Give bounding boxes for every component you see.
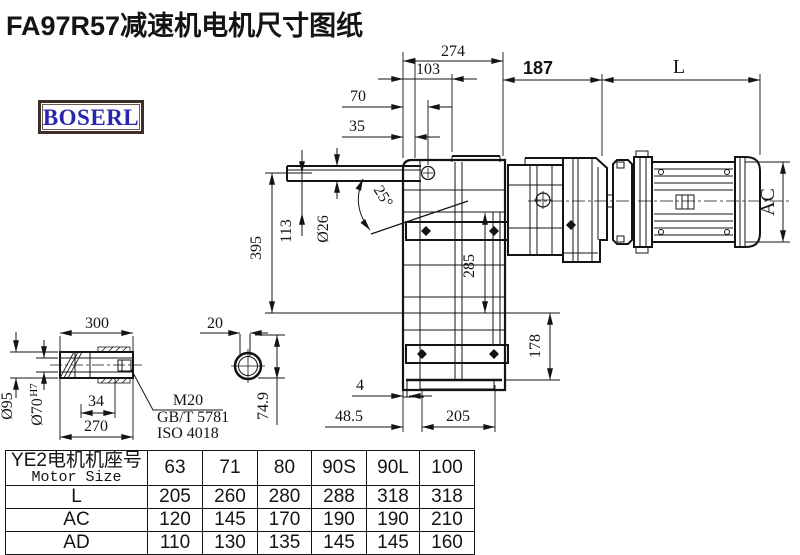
extension-lines <box>10 52 790 440</box>
cell-L-100: 318 <box>420 486 475 509</box>
dim-187: 187 <box>523 58 553 78</box>
cell-L-80: 280 <box>258 486 312 509</box>
row-label-AD: AD <box>6 532 148 555</box>
table-header-motor-size: YE2电机机座号 Motor Size <box>6 451 148 486</box>
header-en: Motor Size <box>6 471 147 485</box>
table-header-row: YE2电机机座号 Motor Size 63 71 80 90S 90L 100 <box>6 451 475 486</box>
cell-AD-100: 160 <box>420 532 475 555</box>
dim-113: 113 <box>278 219 295 242</box>
label-iso4018: ISO 4018 <box>157 425 219 442</box>
cell-L-90s: 288 <box>312 486 367 509</box>
dim-20: 20 <box>207 315 223 332</box>
cell-L-63: 205 <box>148 486 203 509</box>
cell-AC-71: 145 <box>203 509 258 532</box>
dim-274: 274 <box>441 43 465 60</box>
hollow-shaft-detail <box>50 347 142 383</box>
dim-AC: AC <box>757 188 779 216</box>
dim-25deg: 25° <box>370 183 396 211</box>
cell-AC-80: 170 <box>258 509 312 532</box>
header-cn: YE2电机机座号 <box>6 451 147 471</box>
col-80: 80 <box>258 451 312 486</box>
cell-AC-90s: 190 <box>312 509 367 532</box>
motor-size-table: YE2电机机座号 Motor Size 63 71 80 90S 90L 100… <box>5 450 475 555</box>
table-row-L: L 205 260 280 288 318 318 <box>6 486 475 509</box>
col-100: 100 <box>420 451 475 486</box>
cell-AC-63: 120 <box>148 509 203 532</box>
dim-70: 70 <box>350 88 366 105</box>
col-90l: 90L <box>367 451 420 486</box>
cell-AD-63: 110 <box>148 532 203 555</box>
dim-178: 178 <box>527 334 544 358</box>
dim-70h7: Ø70 <box>29 398 46 426</box>
dim-103: 103 <box>416 61 440 78</box>
cell-L-90l: 318 <box>367 486 420 509</box>
dim-95: Ø95 <box>0 392 16 420</box>
dimension-lines <box>16 61 783 437</box>
r57-gear-unit <box>508 158 607 262</box>
dim-4: 4 <box>356 377 364 394</box>
dim-26: Ø26 <box>315 215 332 243</box>
keyed-bore-section <box>231 334 265 383</box>
cell-AD-80: 135 <box>258 532 312 555</box>
cell-L-71: 260 <box>203 486 258 509</box>
row-label-AC: AC <box>6 509 148 532</box>
col-90s: 90S <box>312 451 367 486</box>
motor <box>528 151 792 253</box>
cell-AC-100: 210 <box>420 509 475 532</box>
dim-74-9: 74.9 <box>255 392 272 420</box>
col-63: 63 <box>148 451 203 486</box>
dim-34: 34 <box>88 393 104 410</box>
dim-205: 205 <box>446 408 470 425</box>
cell-AC-90l: 190 <box>367 509 420 532</box>
cell-AD-90l: 145 <box>367 532 420 555</box>
col-71: 71 <box>203 451 258 486</box>
dim-300: 300 <box>85 315 109 332</box>
dim-35: 35 <box>349 118 365 135</box>
dim-48-5: 48.5 <box>335 408 363 425</box>
label-gbt5781: GB/T 5781 <box>157 409 229 426</box>
cell-AD-71: 130 <box>203 532 258 555</box>
table-row-AD: AD 110 130 135 145 145 160 <box>6 532 475 555</box>
row-label-L: L <box>6 486 148 509</box>
dim-270: 270 <box>84 418 108 435</box>
dim-h7-tolerance: H7 <box>28 383 40 397</box>
dim-L: L <box>673 56 685 78</box>
dim-285: 285 <box>461 254 478 278</box>
label-m20: M20 <box>173 392 203 409</box>
dim-395: 395 <box>248 236 265 260</box>
table-row-AC: AC 120 145 170 190 190 210 <box>6 509 475 532</box>
cell-AD-90s: 145 <box>312 532 367 555</box>
gearbox-housing <box>403 156 508 397</box>
drawing-sheet: FA97R57减速机电机尺寸图纸 BOSERL <box>0 0 800 555</box>
